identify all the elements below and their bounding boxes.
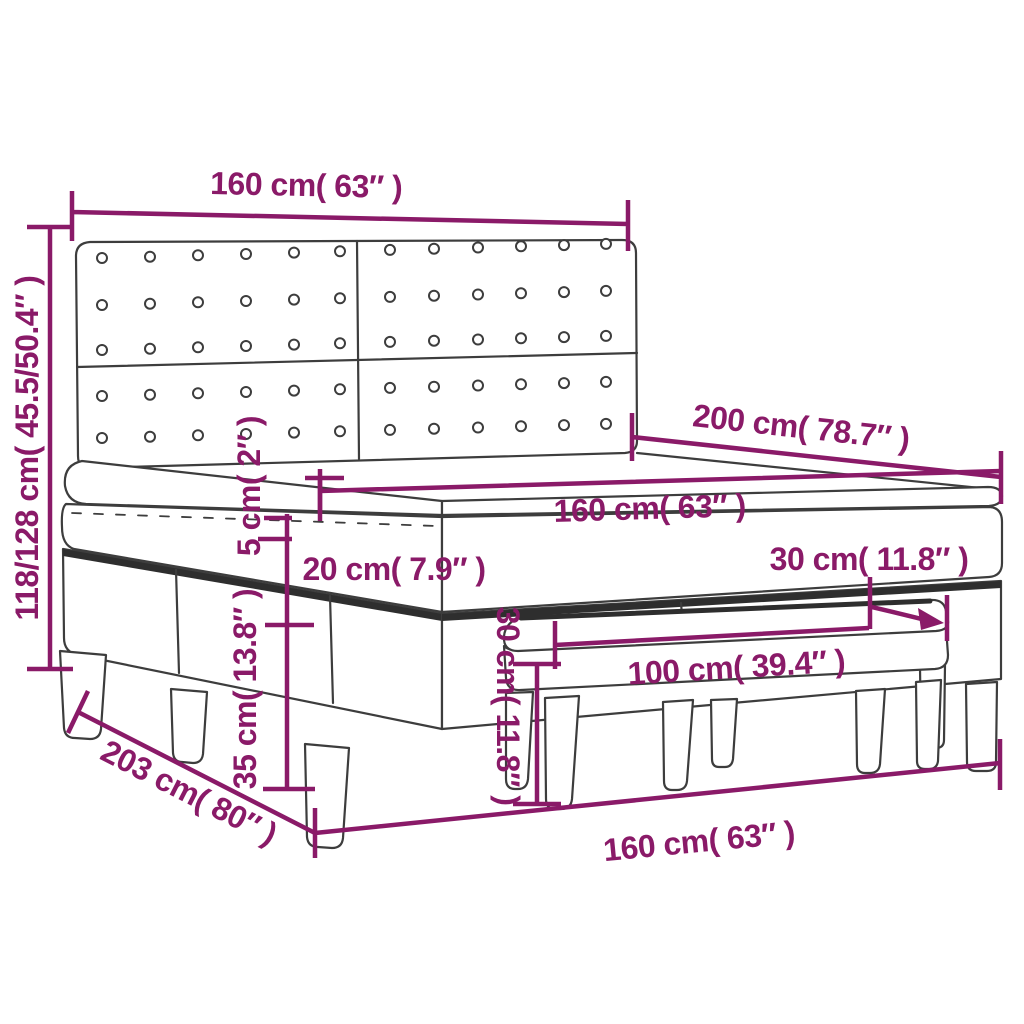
headboard-button xyxy=(193,297,203,307)
headboard-button xyxy=(335,293,345,303)
headboard-button xyxy=(559,420,569,430)
dim-headboard-height-label: 118/128 cm( 45.5/50.4″ ) xyxy=(9,276,45,621)
headboard-button xyxy=(473,243,483,253)
bed-leg xyxy=(171,689,207,763)
diagram-canvas: 160 cm( 63″ ) 118/128 cm( 45.5/50.4″ ) 2… xyxy=(0,0,1024,1024)
headboard-button xyxy=(385,292,395,302)
bench-leg xyxy=(663,700,693,790)
headboard-button xyxy=(516,288,526,298)
dim-headboard-width-label: 160 cm( 63″ ) xyxy=(210,165,403,205)
headboard-button xyxy=(559,240,569,250)
bench-drawing xyxy=(504,600,948,809)
headboard-button xyxy=(145,432,155,442)
dim-mattress-width-label: 160 cm( 63″ ) xyxy=(553,487,746,529)
headboard-button xyxy=(429,336,439,346)
headboard-button xyxy=(559,287,569,297)
bench-leg xyxy=(856,689,885,773)
headboard-button xyxy=(601,331,611,341)
headboard-button xyxy=(289,248,299,258)
headboard-button xyxy=(335,384,345,394)
headboard-button xyxy=(601,419,611,429)
headboard-button xyxy=(97,253,107,263)
headboard-button xyxy=(516,241,526,251)
dim-bench-depth-label: 30 cm( 11.8″ ) xyxy=(770,541,969,577)
headboard-button xyxy=(516,421,526,431)
bed-dimension-diagram: 160 cm( 63″ ) 118/128 cm( 45.5/50.4″ ) 2… xyxy=(0,0,1024,1024)
headboard-button xyxy=(335,426,345,436)
headboard-button xyxy=(241,341,251,351)
headboard-button xyxy=(97,433,107,443)
headboard-button xyxy=(335,338,345,348)
headboard-button xyxy=(429,382,439,392)
headboard-button xyxy=(601,286,611,296)
headboard-button xyxy=(97,391,107,401)
headboard-button xyxy=(601,239,611,249)
headboard-button xyxy=(429,424,439,434)
headboard-button xyxy=(145,344,155,354)
bench-leg xyxy=(711,699,737,767)
headboard-button xyxy=(473,423,483,433)
headboard-button xyxy=(473,381,483,391)
headboard-button xyxy=(559,378,569,388)
bench-leg xyxy=(916,680,941,769)
headboard-button xyxy=(193,250,203,260)
dim-mattress-thickness-label: 20 cm( 7.9″ ) xyxy=(302,551,485,587)
headboard-button xyxy=(193,430,203,440)
headboard-button xyxy=(385,245,395,255)
headboard-button xyxy=(241,249,251,259)
headboard-button xyxy=(193,388,203,398)
headboard-button xyxy=(289,386,299,396)
headboard-button xyxy=(97,300,107,310)
headboard-button xyxy=(289,295,299,305)
headboard-button xyxy=(97,345,107,355)
bed-leg xyxy=(60,651,106,739)
headboard-button xyxy=(473,290,483,300)
dim-base-width-label: 160 cm( 63″ ) xyxy=(602,814,797,868)
headboard-button xyxy=(601,377,611,387)
headboard-button xyxy=(516,333,526,343)
headboard-button xyxy=(289,428,299,438)
dim-base-height-label: 35 cm( 13.8″ ) xyxy=(227,589,263,789)
bed-leg xyxy=(966,682,997,771)
dim-base-width: 160 cm( 63″ ) xyxy=(315,739,1000,868)
bench-leg xyxy=(545,696,579,809)
headboard-button xyxy=(385,383,395,393)
headboard-button xyxy=(241,296,251,306)
headboard-button xyxy=(145,252,155,262)
dim-base-height: 35 cm( 13.8″ ) xyxy=(227,589,263,789)
headboard-button xyxy=(335,246,345,256)
headboard-button xyxy=(429,244,439,254)
headboard-button xyxy=(385,337,395,347)
dim-topper-thickness-label: 5 cm( 2″ ) xyxy=(231,416,267,556)
headboard-button xyxy=(559,332,569,342)
headboard-button xyxy=(145,390,155,400)
dim-headboard-width: 160 cm( 63″ ) xyxy=(72,165,628,251)
headboard-button xyxy=(473,335,483,345)
headboard-button xyxy=(429,291,439,301)
dim-bench-height-label: 30 cm( 11.8″ ) xyxy=(490,607,526,806)
headboard-button xyxy=(516,379,526,389)
headboard-button xyxy=(193,342,203,352)
dim-mattress-thickness: 20 cm( 7.9″ ) xyxy=(302,551,485,587)
headboard-button xyxy=(241,387,251,397)
headboard-button xyxy=(385,425,395,435)
headboard-button xyxy=(289,340,299,350)
headboard-button xyxy=(145,299,155,309)
